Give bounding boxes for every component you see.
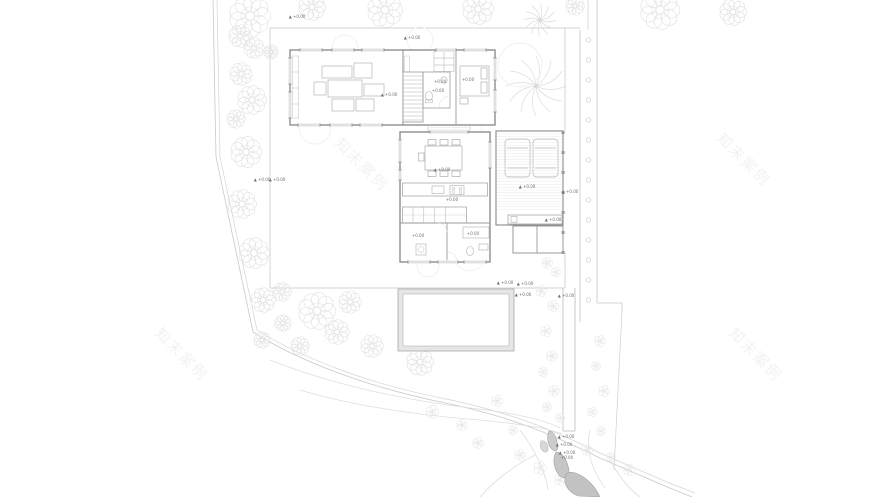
window [288, 58, 292, 84]
window [464, 48, 486, 52]
window [332, 48, 354, 52]
window [288, 92, 292, 118]
window [464, 260, 486, 264]
elevation-label: ▲ +0.00 [556, 442, 573, 447]
stair-outline [403, 72, 423, 122]
window [488, 142, 492, 168]
window [430, 130, 468, 134]
tree [231, 137, 262, 168]
planting-dot [586, 218, 590, 222]
shrub [599, 385, 610, 396]
shrub [549, 385, 560, 396]
shrub [536, 285, 547, 296]
pool [398, 289, 514, 351]
storage-rooms [513, 226, 563, 253]
shrub [597, 426, 606, 435]
shrub-foliage [552, 268, 557, 273]
elevation-label: ▲ +0.00 [434, 167, 451, 172]
shrub-foliage [426, 407, 432, 413]
planting-dot [586, 78, 590, 82]
shrub [492, 395, 503, 406]
tree [407, 349, 434, 376]
tree [228, 190, 257, 219]
elevation-label: ▲ +0.00 [562, 189, 579, 194]
canopy-circle [498, 43, 542, 87]
planting-dot [586, 38, 590, 42]
tree-foliage [641, 0, 657, 14]
shrub-foliage [549, 387, 554, 392]
driveway-planting-dots [586, 38, 590, 302]
stream-bank-line [520, 430, 548, 490]
tree [641, 0, 680, 30]
window-opening [430, 130, 468, 134]
window [398, 140, 402, 162]
elevation-label: +0.00 [467, 231, 480, 236]
shrub-foliage [582, 446, 587, 451]
shrub [539, 367, 548, 376]
window-opening [398, 140, 402, 162]
palm-frond [521, 86, 536, 112]
window-opening [288, 92, 292, 118]
shrub [552, 267, 561, 276]
shrub-foliage [624, 466, 629, 471]
palm-frond [532, 86, 536, 116]
wall-column [562, 131, 565, 134]
window-opening [493, 90, 497, 112]
site-plan-page: ▲ +0.00▲ +0.00▲ +0.00+0.00+0.00+0.00▲ +0… [0, 0, 880, 497]
planting-dot [586, 58, 590, 62]
shrub [595, 335, 606, 346]
shrub [473, 437, 484, 448]
elevation-label: ▲ +0.00 [381, 92, 398, 97]
window-opening [438, 260, 458, 264]
elevation-label: +0.00 [561, 455, 574, 460]
elevation-label: ▲ +0.00 [515, 292, 532, 297]
shrub-foliage [555, 476, 560, 481]
shrub-foliage [492, 397, 497, 402]
window [300, 48, 322, 52]
planting-dot [586, 278, 590, 282]
garage [496, 131, 565, 254]
window-opening [464, 48, 486, 52]
tree [720, 0, 747, 25]
wall-column [562, 231, 565, 234]
palm-frond [536, 60, 551, 86]
window-opening [408, 260, 430, 264]
window-opening [330, 123, 352, 127]
tree [230, 63, 252, 86]
window-opening [398, 170, 402, 180]
wall-column [562, 251, 565, 254]
shrub [543, 402, 552, 411]
planting-dot [586, 258, 590, 262]
pool-basin [403, 294, 509, 346]
window-opening [332, 48, 354, 52]
elevation-label: ▲ +0.00 [558, 434, 575, 439]
tree [251, 288, 275, 313]
elevation-label: +0.00 [434, 79, 447, 84]
tree [325, 320, 349, 345]
shrub-foliage [457, 421, 462, 426]
palm-frond [510, 86, 536, 101]
elevation-label: +0.00 [462, 77, 475, 82]
planting-dot [586, 98, 590, 102]
shrub [541, 325, 552, 336]
window-opening [288, 58, 292, 84]
wall-column [562, 151, 565, 154]
north-wing [290, 50, 495, 125]
shrub-foliage [597, 427, 602, 432]
tree-foliage [479, 0, 492, 9]
window [493, 58, 497, 80]
shrub-foliage [539, 368, 544, 373]
building [288, 48, 564, 264]
window [493, 90, 497, 112]
palm-frond [540, 4, 542, 20]
tree [566, 0, 584, 15]
shrub [515, 449, 526, 460]
palm-frond [536, 86, 551, 112]
tree-foliage [386, 0, 400, 10]
rock [548, 431, 558, 451]
wall-column [562, 211, 565, 214]
shrub-foliage [515, 451, 520, 456]
elevation-label: ▲ +0.00 [497, 280, 514, 285]
planting-dot [586, 158, 590, 162]
road-lower-edge [614, 311, 622, 470]
elevation-label: ▲ +0.00 [289, 14, 306, 19]
window-opening [360, 123, 382, 127]
elevation-label: ▲ +0.00 [269, 177, 286, 182]
window-opening [493, 58, 497, 80]
window [330, 123, 352, 127]
elevation-label: ▲ +0.00 [519, 184, 536, 189]
palm-frond [536, 86, 566, 90]
tree [254, 332, 271, 349]
window-opening [362, 48, 384, 52]
window [360, 123, 382, 127]
shrub-foliage [536, 287, 541, 292]
north-wing-walls [290, 50, 495, 125]
planting-dot [586, 118, 590, 122]
window-opening [488, 142, 492, 168]
shrub [542, 257, 553, 268]
palm-tree [524, 4, 556, 36]
elevation-label: +0.00 [432, 88, 445, 93]
elevation-label: +0.00 [446, 197, 459, 202]
shrub-foliage [509, 426, 514, 431]
shrub [592, 361, 601, 370]
tree [239, 238, 270, 269]
shrub-foliage [534, 463, 540, 469]
tree [230, 0, 271, 37]
tree [273, 283, 291, 302]
staircase [403, 72, 423, 122]
palm-frond [524, 18, 540, 20]
planting-dot [586, 198, 590, 202]
shrub-foliage [543, 403, 548, 408]
shrub-foliage [548, 302, 553, 307]
tree [368, 0, 403, 28]
elevation-label: ▲ +0.00 [545, 217, 562, 222]
shrub [547, 350, 558, 361]
shrub-foliage [599, 387, 604, 392]
garden-path-curve [480, 455, 535, 497]
elevation-label: +0.00 [412, 233, 425, 238]
planting-dot [586, 138, 590, 142]
tree [299, 292, 336, 329]
window-opening [300, 48, 322, 52]
palm-frond [536, 86, 562, 101]
shrub-foliage [547, 352, 552, 357]
planting-dot [586, 298, 590, 302]
tree [275, 315, 292, 332]
shrub-foliage [556, 414, 561, 419]
elevation-label: ▲ +0.00 [558, 293, 575, 298]
shrub [588, 407, 597, 416]
window-opening [436, 48, 456, 52]
watermark-text: 知末案例 [331, 134, 392, 195]
garden-path-curve [300, 390, 562, 434]
window-opening [298, 123, 320, 127]
tree [339, 291, 361, 314]
driveway [580, 0, 622, 470]
watermark-text: 知末案例 [151, 324, 212, 385]
shrub [426, 406, 439, 419]
window [436, 48, 456, 52]
shrub-foliage [595, 337, 600, 342]
tree [291, 337, 309, 356]
palm-frond [536, 56, 540, 86]
window [362, 48, 384, 52]
planting-dot [586, 178, 590, 182]
garden-footpath [563, 288, 575, 431]
canopy-circle [407, 27, 433, 53]
shrub-foliage [588, 408, 593, 413]
tree [463, 0, 494, 25]
palm-frond [536, 71, 562, 86]
window-opening [464, 260, 486, 264]
shrub-foliage [541, 327, 546, 332]
elevation-label: ▲ +0.00 [404, 35, 421, 40]
shrub-foliage [542, 259, 547, 264]
tree [244, 38, 264, 59]
tree [264, 45, 278, 59]
shrub [548, 300, 559, 311]
shrub [509, 425, 518, 434]
window [408, 260, 430, 264]
watermark-text: 知末案例 [725, 324, 786, 385]
rock [540, 441, 548, 452]
tree [238, 86, 267, 115]
shrub-foliage [592, 362, 597, 367]
watermark-text: 知末案例 [713, 129, 774, 190]
rock [565, 472, 600, 497]
window [298, 123, 320, 127]
shrub [457, 419, 468, 430]
shrub [556, 413, 565, 422]
garden-paths [270, 360, 640, 497]
site-plan-canvas: ▲ +0.00▲ +0.00▲ +0.00+0.00+0.00+0.00▲ +0… [0, 0, 880, 497]
window [398, 170, 402, 180]
palm-trees-layer [506, 4, 566, 116]
tree [227, 110, 245, 129]
wall-column [562, 171, 565, 174]
palm-frond [540, 20, 556, 22]
planting-dot [586, 238, 590, 242]
shrub-foliage [473, 439, 478, 444]
stream-rocks [540, 431, 600, 497]
window [438, 260, 458, 264]
elevation-label: ▲ +0.00 [517, 281, 534, 286]
road-jog [597, 303, 622, 311]
tree-foliage [576, 0, 584, 6]
tree [361, 335, 383, 358]
